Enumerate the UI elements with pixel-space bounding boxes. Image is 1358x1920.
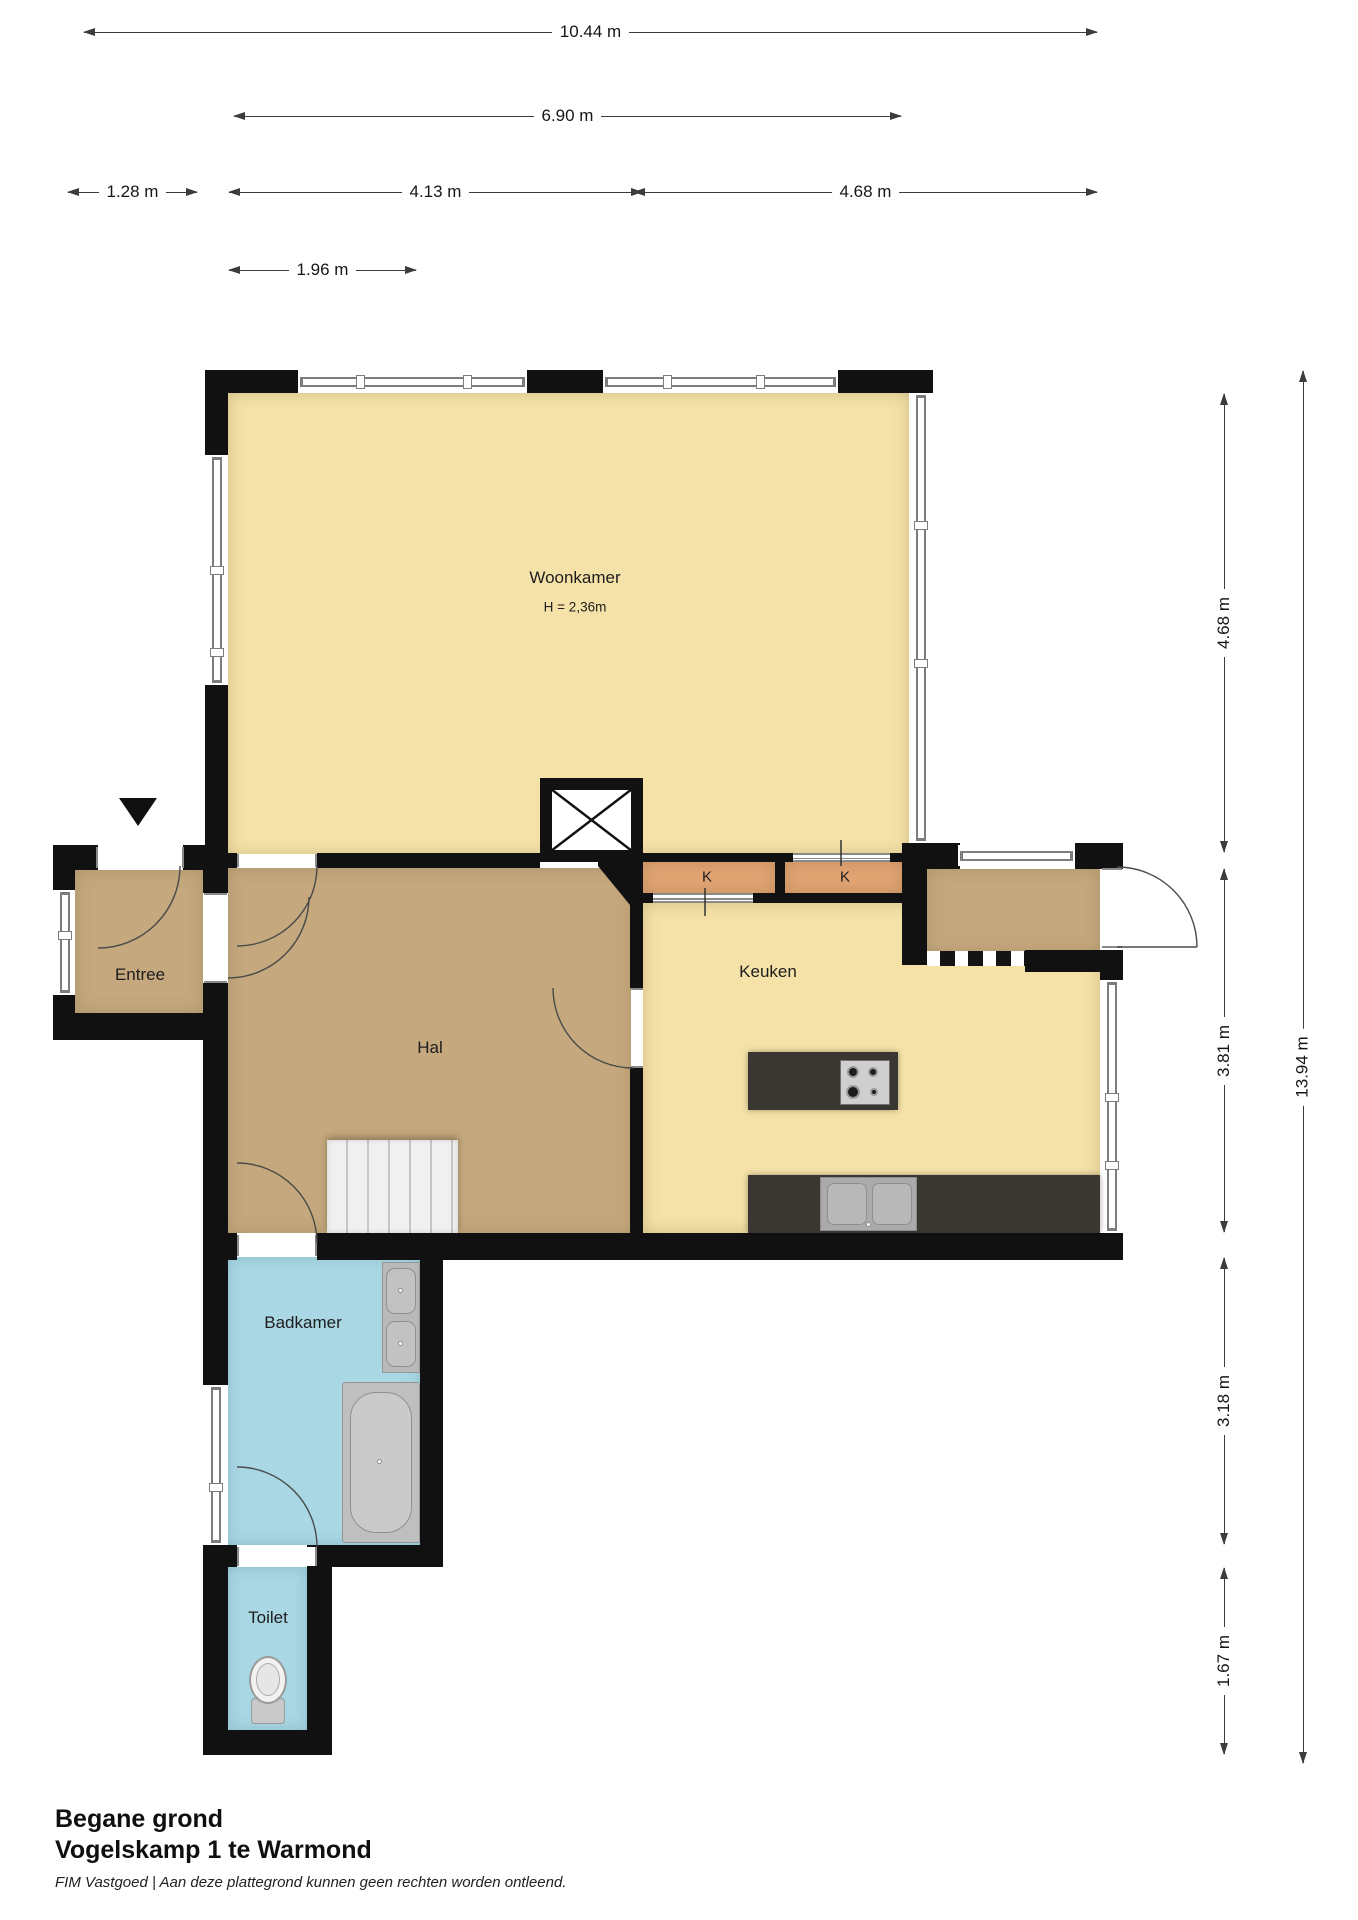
dim-keuken-depth: 3.81 m	[1215, 868, 1233, 1233]
dim-toilet-depth-label: 1.67 m	[1212, 1627, 1236, 1695]
wall-segment	[775, 862, 785, 893]
wall-segment	[203, 1730, 332, 1755]
wall-segment	[753, 893, 902, 903]
room-label-woonkamer-height: H = 2,36m	[544, 600, 607, 615]
wall-segment	[203, 1233, 237, 1260]
dim-stair-width: 1.96 m	[228, 261, 417, 279]
dim-total-depth-label: 13.94 m	[1291, 1028, 1315, 1105]
dim-woonkamer-depth-label: 4.68 m	[1212, 589, 1236, 657]
wall-segment	[420, 1233, 443, 1567]
wall-segment	[838, 370, 933, 393]
wall-segment	[203, 853, 237, 868]
hal-badkamer-door-opening	[237, 1235, 317, 1256]
dim-toilet-depth: 1.67 m	[1215, 1567, 1233, 1755]
dim-badkamer-depth-label: 3.18 m	[1212, 1367, 1236, 1435]
dim-upper-width: 6.90 m	[233, 107, 902, 125]
floorplan-page: 10.44 m 6.90 m 1.28 m 4.13 m 4.68 m 1.96…	[0, 0, 1358, 1920]
wall-segment	[203, 1257, 228, 1385]
dim-upper-width-label: 6.90 m	[534, 106, 602, 126]
kitchen-island	[748, 1052, 898, 1110]
window	[298, 371, 527, 392]
window	[55, 890, 74, 995]
room-label-closet-k2: K	[840, 869, 850, 886]
window	[206, 455, 227, 685]
dim-keuken-width: 4.68 m	[633, 183, 1098, 201]
dim-keuken-depth-label: 3.81 m	[1212, 1017, 1236, 1085]
dim-stair-width-label: 1.96 m	[289, 260, 357, 280]
room-label-woonkamer: Woonkamer	[529, 568, 620, 588]
window	[205, 1385, 226, 1545]
footer-floor-title: Begane grond	[55, 1805, 223, 1834]
window	[958, 845, 1075, 866]
side-entrance-door-arc	[1117, 867, 1197, 947]
kitchen-sink-icon	[820, 1177, 917, 1231]
wall-segment	[53, 870, 75, 890]
room-label-badkamer: Badkamer	[264, 1313, 341, 1333]
wall-segment	[1100, 950, 1123, 980]
washbasin-icon	[386, 1268, 416, 1314]
closet-k1-sliding-door	[653, 893, 753, 903]
wall-segment	[643, 893, 653, 903]
wall-segment	[205, 393, 228, 455]
wall-segment	[1075, 843, 1123, 869]
dim-hal-width: 4.13 m	[228, 183, 643, 201]
room-label-toilet: Toilet	[248, 1608, 288, 1628]
window	[1101, 980, 1122, 1233]
wall-segment	[630, 1068, 643, 1233]
wall-segment	[205, 370, 298, 393]
room-woonkamer	[228, 393, 909, 855]
dim-entree-width-label: 1.28 m	[99, 182, 167, 202]
wall-segment	[317, 1545, 443, 1567]
wall-segment	[902, 843, 927, 965]
wall-segment	[203, 1545, 228, 1755]
window	[910, 393, 931, 843]
side-entrance-door-opening	[1102, 868, 1122, 948]
entrance-arrow-icon	[119, 798, 157, 826]
window	[603, 371, 838, 392]
wall-segment	[307, 1545, 332, 1755]
room-label-closet-k1: K	[702, 869, 712, 886]
dim-total-depth: 13.94 m	[1294, 370, 1312, 1764]
room-label-entree: Entree	[115, 965, 165, 985]
washbasin-icon	[386, 1321, 416, 1367]
front-door-opening	[96, 847, 184, 868]
wall-segment	[633, 853, 643, 903]
dim-total-width-label: 10.44 m	[552, 22, 629, 42]
room-label-hal: Hal	[417, 1038, 443, 1058]
woonkamer-hal-door-opening	[237, 854, 317, 867]
badkamer-toilet-door-opening	[237, 1547, 317, 1566]
dim-hal-width-label: 4.13 m	[402, 182, 470, 202]
wall-segment	[643, 853, 793, 862]
wall-segment	[53, 995, 75, 1015]
wall-segment	[203, 983, 228, 1233]
kitchen-counter	[748, 1175, 1100, 1233]
wall-segment	[890, 853, 902, 862]
dim-entree-width: 1.28 m	[67, 183, 198, 201]
footer-disclaimer: FIM Vastgoed | Aan deze plattegrond kunn…	[55, 1874, 566, 1891]
entree-hal-door-opening	[204, 893, 227, 983]
room-label-keuken: Keuken	[739, 962, 797, 982]
footer-address: Vogelskamp 1 te Warmond	[55, 1836, 372, 1865]
wall-segment	[317, 853, 540, 868]
wall-segment	[902, 950, 927, 965]
wall-segment	[205, 685, 228, 855]
wall-segment	[630, 903, 643, 988]
bathtub-icon	[342, 1382, 420, 1543]
wall-segment	[53, 845, 98, 870]
wall-segment	[527, 370, 603, 393]
room-entree	[75, 870, 203, 1013]
dim-badkamer-depth: 3.18 m	[1215, 1257, 1233, 1545]
wall-segment	[53, 1013, 228, 1040]
room-side-entrance	[927, 869, 1100, 953]
staircase	[327, 1140, 458, 1233]
hal-keuken-door-opening	[631, 988, 643, 1068]
gas-hob-icon	[840, 1060, 890, 1105]
pass-through-dashed-opening	[927, 951, 1025, 966]
dim-keuken-width-label: 4.68 m	[832, 182, 900, 202]
dim-woonkamer-depth: 4.68 m	[1215, 393, 1233, 853]
bathroom-vanity	[382, 1262, 420, 1373]
dim-total-width: 10.44 m	[83, 23, 1098, 41]
closet-k2-sliding-door	[793, 853, 890, 862]
